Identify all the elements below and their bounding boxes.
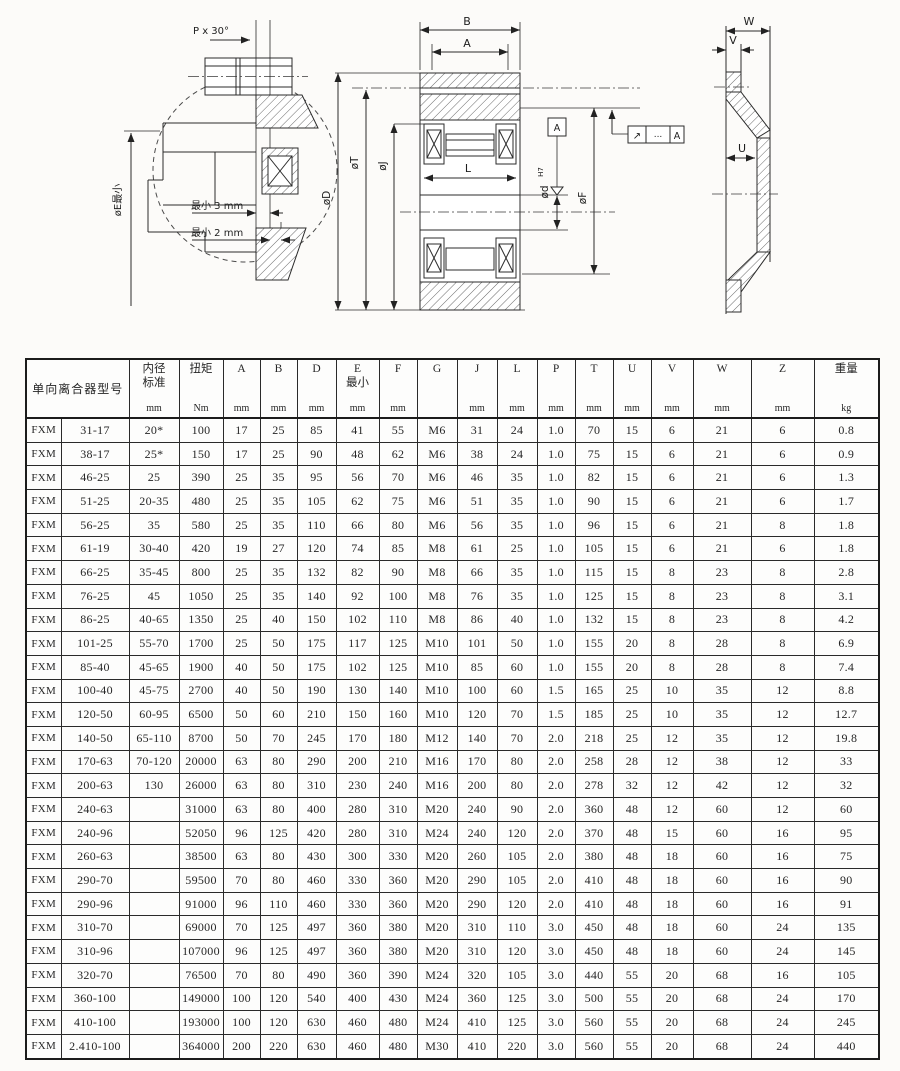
table-cell: M20 [417,940,457,964]
chamfer-dim-label: P x 30° [193,26,229,37]
column-header: 内径 标准mm [129,359,179,418]
dim-w-label: W [744,15,755,28]
table-cell: 105 [497,845,537,869]
table-cell: 25 [223,632,260,656]
table-cell: 15 [613,584,651,608]
table-cell: 260 [457,845,497,869]
section-view: B A L [321,15,684,310]
table-row: FXM310-706900070125497360380M203101103.0… [26,916,879,940]
table-cell: 1.0 [537,466,575,490]
table-cell: 2.0 [537,798,575,822]
table-cell: 280 [336,821,379,845]
table-cell: 497 [297,916,336,940]
table-cell: 400 [297,798,336,822]
table-cell: 8 [651,584,693,608]
table-cell: 15 [613,442,651,466]
table-row: FXM46-25253902535955670M646351.082156216… [26,466,879,490]
table-cell: 497 [297,940,336,964]
table-cell: 45-75 [129,679,179,703]
table-row: FXM140-5065-11087005070245170180M1214070… [26,726,879,750]
table-cell: 18 [651,869,693,893]
table-cell: 27 [260,537,297,561]
table-cell: 15 [613,418,651,442]
table-cell: M8 [417,537,457,561]
table-cell: 125 [260,916,297,940]
table-cell: 48 [613,845,651,869]
table-cell: 185 [575,703,613,727]
table-cell: 38-17 [61,442,129,466]
table-cell: 23 [693,584,751,608]
table-cell: 21 [693,537,751,561]
column-unit: mm [337,402,379,415]
table-cell: 580 [179,513,223,537]
table-cell: 440 [575,963,613,987]
table-cell: 430 [379,987,417,1011]
table-cell: 450 [575,916,613,940]
table-cell: 120 [297,537,336,561]
table-cell: M10 [417,655,457,679]
table-cell: 66-25 [61,561,129,585]
column-label: T [576,362,613,376]
table-cell: 3.0 [537,963,575,987]
table-cell: 10 [651,679,693,703]
table-cell: 35 [129,513,179,537]
column-unit: mm [380,402,417,415]
table-cell: M24 [417,821,457,845]
table-cell: 6 [751,442,814,466]
table-cell: 6 [751,418,814,442]
table-cell: 480 [379,1034,417,1058]
table-cell: 60 [814,798,879,822]
table-cell: 40 [260,608,297,632]
table-cell: 140 [297,584,336,608]
table-cell: 85-40 [61,655,129,679]
column-label: 重量 [815,362,879,376]
table-row: FXM56-253558025351106680M656351.09615621… [26,513,879,537]
table-cell: 35 [260,466,297,490]
table-cell: 56-25 [61,513,129,537]
table-cell: 70 [497,726,537,750]
table-cell: 60 [497,679,537,703]
table-cell: 210 [297,703,336,727]
table-cell: 1.3 [814,466,879,490]
table-cell: 75 [814,845,879,869]
table-cell [129,798,179,822]
table-cell: 100-40 [61,679,129,703]
table-cell: 75 [575,442,613,466]
profile-view: W V U [712,15,778,314]
table-cell: 10 [651,703,693,727]
column-label: V [652,362,693,376]
table-cell: 280 [336,798,379,822]
table-cell: 70 [223,916,260,940]
table-cell: 8.8 [814,679,879,703]
table-cell: 8 [651,655,693,679]
table-cell: 1350 [179,608,223,632]
table-cell: 2.0 [537,892,575,916]
table-cell: 76 [457,584,497,608]
table-cell: 96 [575,513,613,537]
table-cell: 8700 [179,726,223,750]
table-cell: 100 [179,418,223,442]
table-cell: 46 [457,466,497,490]
table-cell: FXM [26,1034,61,1058]
table-cell: 80 [497,750,537,774]
table-cell: 60 [693,869,751,893]
column-unit: mm [130,402,179,415]
table-cell: 105 [575,537,613,561]
table-cell: 48 [613,916,651,940]
min3-label: 最小 3 mm [191,200,243,212]
table-cell: 310-96 [61,940,129,964]
table-cell: 25 [223,513,260,537]
table-cell: 40 [223,679,260,703]
table-cell: 370 [575,821,613,845]
table-cell: 125 [379,655,417,679]
table-cell: FXM [26,537,61,561]
table-cell: 24 [751,1011,814,1035]
table-cell: 102 [336,608,379,632]
table-cell: 35 [260,584,297,608]
column-label: 扭矩 [180,362,223,376]
table-cell: 1.0 [537,442,575,466]
table-cell: 60-95 [129,703,179,727]
table-cell [129,845,179,869]
table-cell: 50 [260,679,297,703]
fcf-value: ... [654,130,663,140]
table-cell: M16 [417,774,457,798]
column-unit: mm [614,402,651,415]
table-cell: 75 [379,490,417,514]
table-cell: 1900 [179,655,223,679]
dim-t-label: øT [349,156,361,169]
dim-f-label: øF [577,192,589,204]
table-cell: 132 [575,608,613,632]
dim-b-label: B [463,15,471,28]
table-cell: 0.8 [814,418,879,442]
table-cell: 1700 [179,632,223,656]
table-cell: 440 [814,1034,879,1058]
table-cell: 48 [613,798,651,822]
table-cell: 86-25 [61,608,129,632]
table-cell: 31000 [179,798,223,822]
table-cell: 360 [379,869,417,893]
table-cell: 76-25 [61,584,129,608]
table-cell: 290 [297,750,336,774]
table-cell: 1.0 [537,561,575,585]
table-cell: 420 [179,537,223,561]
table-cell: 245 [297,726,336,750]
column-header: Pmm [537,359,575,418]
table-cell: 15 [613,561,651,585]
table-cell: FXM [26,679,61,703]
table-cell: 193000 [179,1011,223,1035]
table-cell: 25 [129,466,179,490]
table-cell: 220 [260,1034,297,1058]
table-cell: 110 [297,513,336,537]
table-cell: 290 [457,892,497,916]
table-cell: 80 [260,750,297,774]
table-cell: 2700 [179,679,223,703]
table-cell: 25 [260,442,297,466]
table-cell [129,963,179,987]
table-cell: 2.0 [537,869,575,893]
table-cell: M20 [417,845,457,869]
table-cell: 410 [457,1034,497,1058]
table-row: FXM310-9610700096125497360380M203101203.… [26,940,879,964]
table-cell: 55 [613,1011,651,1035]
table-cell: 70 [379,466,417,490]
table-cell: 218 [575,726,613,750]
table-cell: FXM [26,513,61,537]
table-cell: 63 [223,845,260,869]
table-cell: M16 [417,750,457,774]
table-cell: 105 [297,490,336,514]
table-cell: 800 [179,561,223,585]
table-cell: 135 [814,916,879,940]
table-cell: 40-65 [129,608,179,632]
table-cell: 6 [651,442,693,466]
table-cell: 290 [457,869,497,893]
table-cell: 38 [457,442,497,466]
table-cell: 30-40 [129,537,179,561]
table-cell: 60 [693,821,751,845]
table-cell: 35 [497,466,537,490]
table-cell: M6 [417,490,457,514]
table-cell: 90 [297,442,336,466]
table-cell: 310 [297,774,336,798]
column-label: L [498,362,537,376]
table-cell: 16 [751,845,814,869]
table-cell: 105 [497,963,537,987]
table-cell: 50 [260,632,297,656]
column-header: 重量kg [814,359,879,418]
table-cell: 15 [613,608,651,632]
table-cell: 330 [336,892,379,916]
table-cell: 63 [223,750,260,774]
table-cell: M20 [417,869,457,893]
table-cell: 140 [379,679,417,703]
table-cell: 56 [457,513,497,537]
table-cell: 1.0 [537,608,575,632]
table-cell [129,987,179,1011]
table-cell: 125 [497,1011,537,1035]
table-cell: 56 [336,466,379,490]
table-cell: 1.0 [537,655,575,679]
table-cell: 35 [497,584,537,608]
table-cell: 17 [223,418,260,442]
table-cell: 70 [223,869,260,893]
column-header: Tmm [575,359,613,418]
column-header: Wmm [693,359,751,418]
table-cell: 35-45 [129,561,179,585]
table-cell: 260-63 [61,845,129,869]
table-cell: 46-25 [61,466,129,490]
column-label: J [458,362,497,376]
table-cell: 8 [751,608,814,632]
table-cell: 19.8 [814,726,879,750]
table-cell: 55-70 [129,632,179,656]
table-cell [129,940,179,964]
column-unit: kg [815,402,879,415]
table-cell: 24 [497,442,537,466]
table-cell: 35 [260,513,297,537]
table-cell: 1.0 [537,490,575,514]
table-cell: 120 [497,892,537,916]
table-cell: 102 [336,655,379,679]
table-cell: 110 [497,916,537,940]
table-cell: 390 [179,466,223,490]
column-header: Zmm [751,359,814,418]
table-cell: 1.0 [537,513,575,537]
table-cell: 180 [379,726,417,750]
table-cell: 51-25 [61,490,129,514]
table-cell: 360 [336,940,379,964]
table-cell: 20 [651,963,693,987]
dim-l-label: L [465,162,472,175]
table-cell: FXM [26,774,61,798]
table-cell: 115 [575,561,613,585]
table-cell: M6 [417,418,457,442]
table-cell: 3.1 [814,584,879,608]
technical-drawings: P x 30° øE最小 最小 3 mm 最小 2 mm [0,0,900,352]
table-cell: 45 [129,584,179,608]
table-cell: 8 [651,561,693,585]
table-cell: 210 [379,750,417,774]
table-cell: 33 [814,750,879,774]
table-cell: 60 [693,940,751,964]
column-unit: mm [538,402,575,415]
table-cell: 175 [297,655,336,679]
table-cell: 20 [651,987,693,1011]
table-row: FXM290-70595007080460330360M202901052.04… [26,869,879,893]
table-cell: 240 [457,821,497,845]
table-cell: FXM [26,892,61,916]
table-cell: 95 [297,466,336,490]
table-cell: FXM [26,584,61,608]
table-cell: 24 [497,418,537,442]
table-cell: 0.9 [814,442,879,466]
column-unit: mm [752,402,814,415]
table-cell: 105 [497,869,537,893]
min2-label: 最小 2 mm [191,227,243,239]
column-unit: mm [458,402,497,415]
table-cell: 90 [497,798,537,822]
table-cell: 25 [223,561,260,585]
column-label: A [224,362,260,376]
table-cell: 120 [457,703,497,727]
table-cell: 320-70 [61,963,129,987]
table-cell: FXM [26,916,61,940]
table-cell: 50 [223,726,260,750]
table-cell: 24 [751,916,814,940]
table-row: FXM2.410-100364000200220630460480M304102… [26,1034,879,1058]
table-cell: 4.2 [814,608,879,632]
table-cell: 32 [613,774,651,798]
column-header: G [417,359,457,418]
table-cell: M6 [417,466,457,490]
table-cell: 63 [223,774,260,798]
scanned-catalog-page: { "page": { "paper_color": "#fcfbf9", "i… [0,0,900,1071]
table-cell: 140-50 [61,726,129,750]
table-cell: 16 [751,869,814,893]
table-cell: 630 [297,1011,336,1035]
table-row: FXM76-25451050253514092100M876351.012515… [26,584,879,608]
table-cell: 310-70 [61,916,129,940]
table-cell: 170-63 [61,750,129,774]
table-cell: M30 [417,1034,457,1058]
table-cell: 41 [336,418,379,442]
table-cell: 35 [497,561,537,585]
table-cell: 8 [751,632,814,656]
table-cell: 18 [651,845,693,869]
table-cell: 16 [751,892,814,916]
column-unit: mm [652,402,693,415]
table-cell: 310 [457,940,497,964]
table-cell: 92 [336,584,379,608]
table-cell: 2.8 [814,561,879,585]
table-cell: 460 [336,1011,379,1035]
column-header: Fmm [379,359,417,418]
dim-j-label: øJ [377,161,389,171]
table-cell: 125 [260,940,297,964]
table-cell: FXM [26,703,61,727]
table-cell: 130 [129,774,179,798]
table-cell: 6 [751,490,814,514]
table-cell: 360 [336,963,379,987]
table-cell: 61-19 [61,537,129,561]
table-cell: 96 [223,892,260,916]
table-cell: 70 [497,703,537,727]
table-cell: 19 [223,537,260,561]
table-cell: 110 [379,608,417,632]
table-cell: 60 [693,892,751,916]
table-cell: 8 [751,655,814,679]
table-cell: 25 [260,418,297,442]
table-cell: 82 [575,466,613,490]
table-row: FXM61-1930-4042019271207485M861251.01051… [26,537,879,561]
table-cell: 480 [379,1011,417,1035]
table-cell: 460 [336,1034,379,1058]
table-cell: 320 [457,963,497,987]
table-cell: 364000 [179,1034,223,1058]
table-cell: 48 [613,821,651,845]
table-cell: 360 [379,892,417,916]
table-cell: 630 [297,1034,336,1058]
table-cell: 120 [497,940,537,964]
table-cell: 68 [693,987,751,1011]
table-cell: 40 [497,608,537,632]
table-cell: 90 [814,869,879,893]
table-cell: 130 [336,679,379,703]
table-cell: 16 [751,821,814,845]
table-cell: 20000 [179,750,223,774]
table-cell: FXM [26,1011,61,1035]
table-cell: 290-96 [61,892,129,916]
table-cell: 24 [751,987,814,1011]
table-cell: 278 [575,774,613,798]
table-cell: 80 [260,845,297,869]
table-cell: 480 [179,490,223,514]
table-cell: 117 [336,632,379,656]
table-cell: 25* [129,442,179,466]
table-cell: 8 [651,632,693,656]
table-cell: 3.0 [537,940,575,964]
table-cell [129,869,179,893]
column-header: E 最小mm [336,359,379,418]
column-label: G [418,362,457,376]
table-cell: 24 [751,940,814,964]
